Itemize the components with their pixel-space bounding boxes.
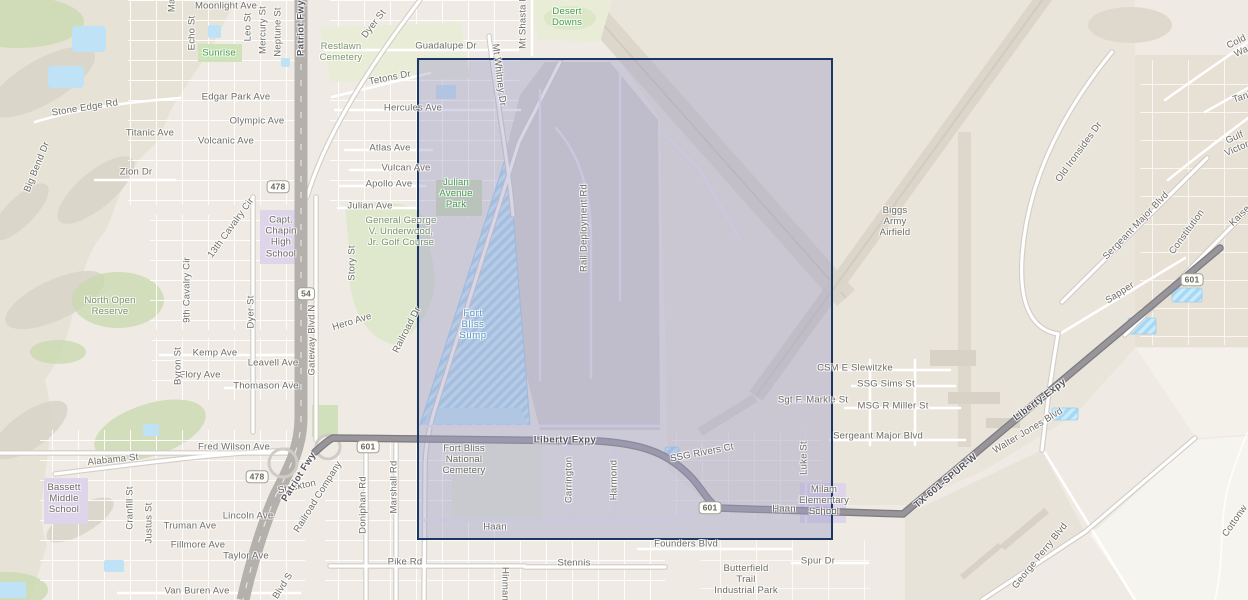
map-canvas[interactable]: Moonlight AveMagneticEcho StLeo StMercur… xyxy=(0,0,1248,600)
selection-extent-overlay xyxy=(417,58,833,540)
